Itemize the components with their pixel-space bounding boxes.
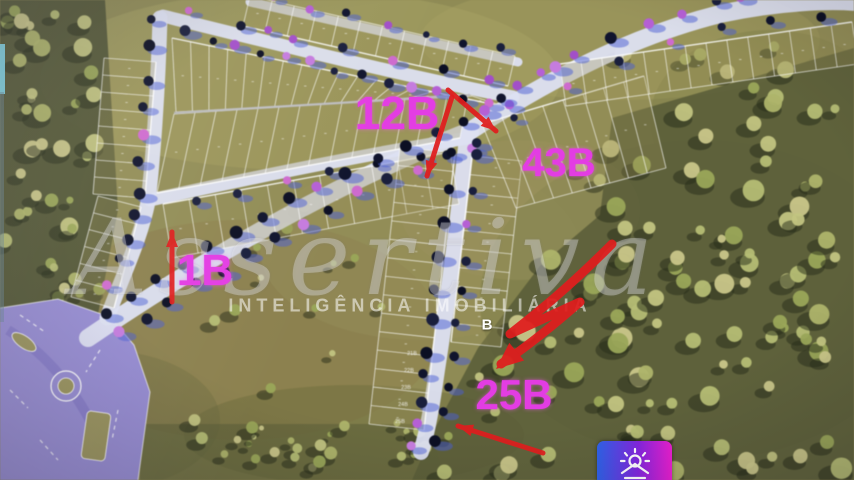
photo-vignette xyxy=(0,0,854,480)
masterplan-aerial-photo: 21B22B23B24B25B Assertiva INTELIGÊNCIA I… xyxy=(0,0,854,480)
